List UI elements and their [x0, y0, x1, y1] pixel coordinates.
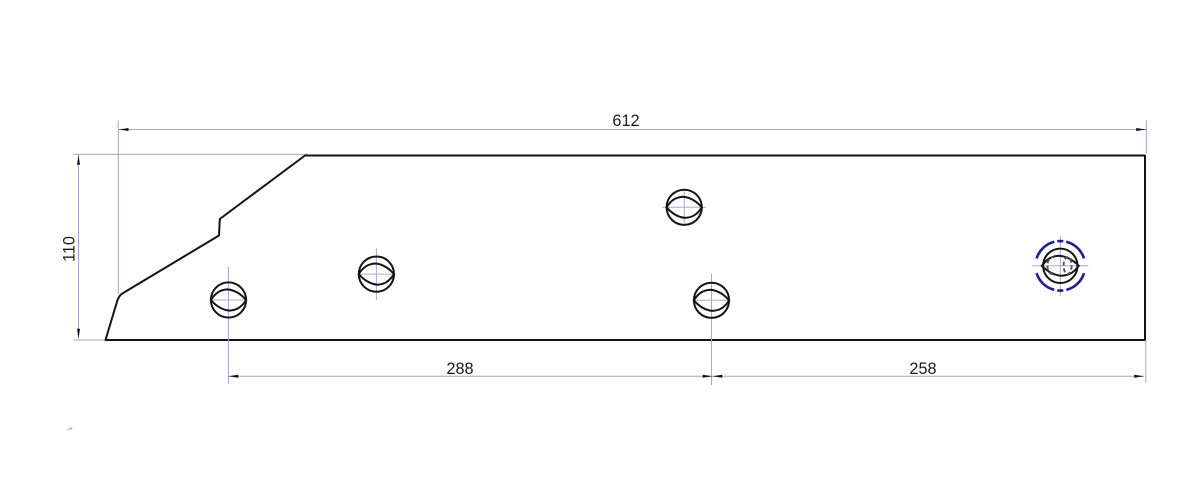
svg-text:110: 110 [60, 236, 78, 262]
svg-text:288: 288 [446, 360, 473, 378]
svg-text:258: 258 [909, 360, 936, 378]
svg-text:612: 612 [612, 112, 639, 130]
